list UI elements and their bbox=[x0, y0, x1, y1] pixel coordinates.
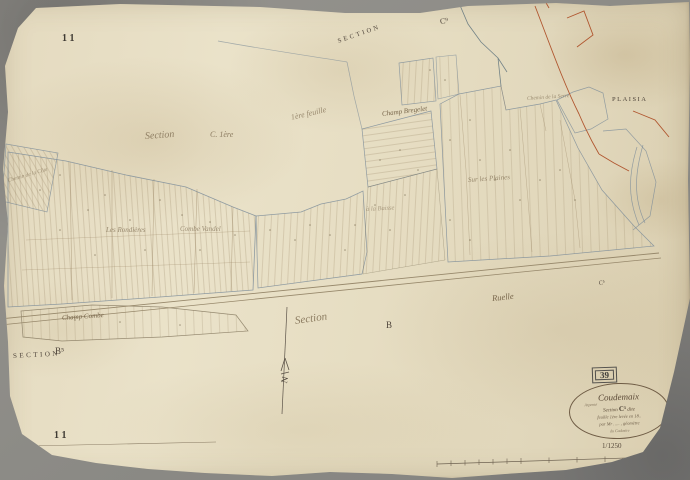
cartouche-section-code: C¹ bbox=[619, 405, 626, 413]
parcel-block-right bbox=[440, 86, 654, 262]
plate-number-top: 11 bbox=[62, 33, 77, 44]
parcel-block-top bbox=[399, 58, 436, 105]
cartouche-section-post: dite bbox=[627, 407, 635, 412]
handwritten-section-top: Section bbox=[145, 129, 175, 142]
section-letter-b: B bbox=[386, 320, 392, 330]
plate-number-bottom: 11 bbox=[54, 430, 69, 441]
scanned-cadastral-map: 11 11 SECTION C⁹ PLAISIA SECTION B⁵ B C⁵… bbox=[0, 0, 690, 480]
cartouche-section-pre: Section bbox=[603, 408, 618, 414]
parcel-block-champ-combe bbox=[21, 305, 248, 341]
section-code-b5: B⁵ bbox=[55, 346, 64, 356]
section-code-c5: C⁵ bbox=[598, 280, 605, 287]
north-arrow bbox=[281, 307, 289, 414]
scale-label: 1/1250 bbox=[602, 442, 621, 450]
section-code-c9: C⁹ bbox=[439, 16, 448, 26]
neighbor-commune-plaisia: PLAISIA bbox=[612, 96, 647, 103]
lieu-dit-a-la-baisse: à la Baisse bbox=[366, 205, 395, 213]
lieu-dit-les-rondieres: Les Rondières bbox=[106, 226, 146, 234]
parcel-block-middle bbox=[256, 191, 367, 288]
lieu-dit-combe-vandel: Combe Vandel bbox=[180, 225, 221, 233]
map-paper-sheet: 11 11 SECTION C⁹ PLAISIA SECTION B⁵ B C⁵… bbox=[0, 0, 690, 480]
handwritten-section-code: C. 1ère bbox=[210, 130, 233, 139]
sheet-number-stamp: 39 bbox=[592, 367, 618, 384]
scale-bar bbox=[437, 455, 689, 467]
